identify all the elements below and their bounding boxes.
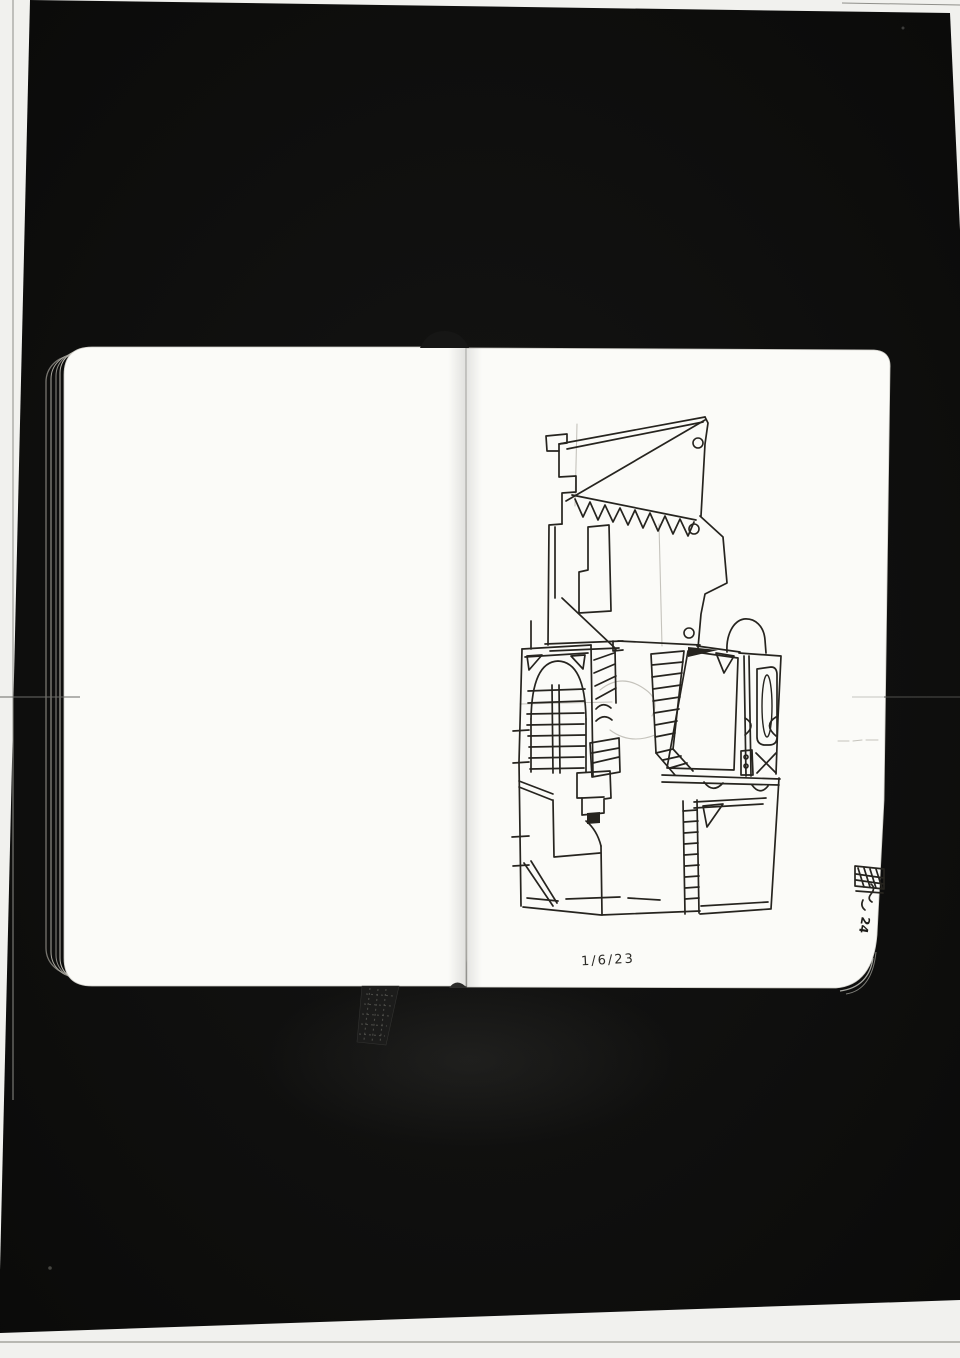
left-page: [64, 347, 466, 986]
right-page: [466, 348, 890, 988]
scanned-sketchbook-photo: 1/6/23 24: [0, 0, 960, 1358]
handwritten-date: 1/6/23: [581, 952, 636, 970]
dust-speck: [48, 1266, 52, 1270]
dust-speck: [902, 27, 905, 30]
edge-handwriting: 24: [856, 916, 873, 935]
scan-canvas: [0, 0, 960, 1358]
scanner-edge-line-top: [842, 3, 960, 5]
gutter-shadow: [448, 348, 482, 987]
shadow-glow: [260, 970, 680, 1150]
